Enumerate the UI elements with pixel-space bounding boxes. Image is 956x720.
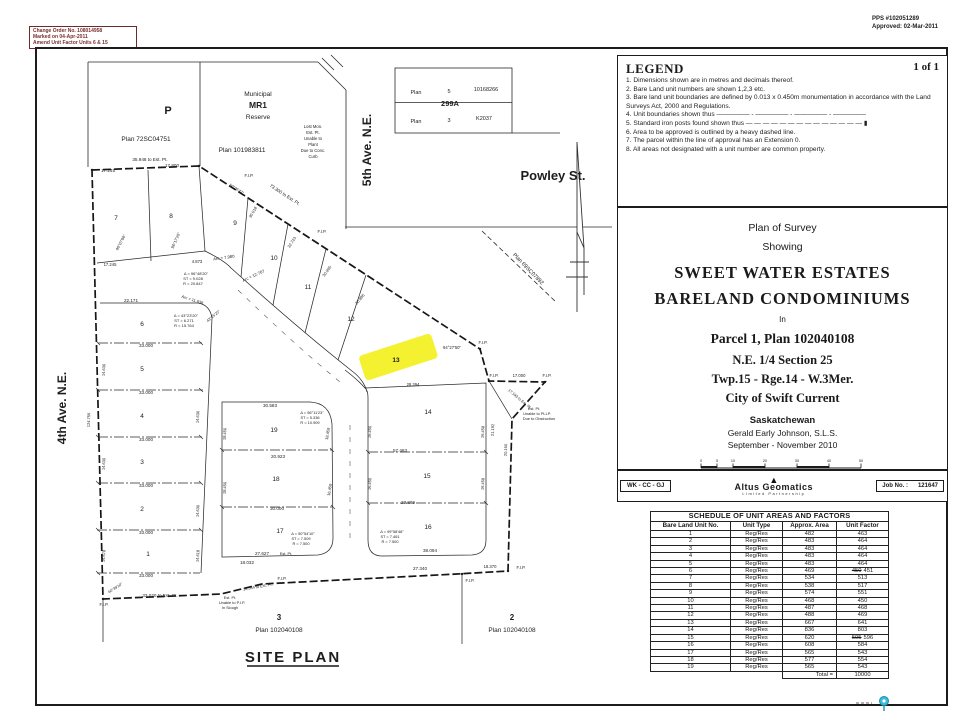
dimension-label: R = 15.764 <box>174 323 194 328</box>
dimension-label: 96°17'20" <box>170 231 182 249</box>
table-cell: 836 <box>783 627 837 634</box>
total-row: Total =10000 <box>651 671 889 678</box>
dimension-label: 17.800 <box>165 163 179 168</box>
lot-number: 5 <box>140 366 144 373</box>
dimension-label: Plant <box>308 142 318 147</box>
table-cell: 565 <box>783 664 837 671</box>
table-row: 17Reg/Res565543 <box>651 649 889 656</box>
parcel-plan-number: Plan 102040108 <box>488 627 536 634</box>
dimension-label: Arc = 12.767 <box>241 268 265 283</box>
dimension-label: Arc = 11.638 <box>181 294 205 306</box>
table-cell: 469 <box>783 568 837 575</box>
survey-plan-page: { "stamps": { "change_order": ["Change O… <box>0 0 956 720</box>
job-number-box: Job No. : 121647 <box>876 480 944 492</box>
dimension-label: 16.458 <box>480 425 486 438</box>
table-cell: 15 <box>651 634 731 641</box>
dimension-label: 3 <box>447 118 450 124</box>
column-header: Unit Factor <box>837 522 889 531</box>
parcel-label-p: P <box>164 105 171 117</box>
dimension-label: K2037 <box>476 116 492 122</box>
unit-factor-cell: 551 <box>837 590 889 597</box>
total-label: Total = <box>783 671 837 678</box>
lot-number: 3 <box>140 459 144 466</box>
table-cell: 483 <box>783 545 837 552</box>
legend-item: 8. All areas not designated with a unit … <box>626 146 939 155</box>
lot-number: 7 <box>114 215 118 222</box>
table-cell: 8 <box>651 582 731 589</box>
table-row: 5Reg/Res483464 <box>651 560 889 567</box>
table-cell: 1 <box>651 531 731 538</box>
table-cell: 487 <box>783 605 837 612</box>
dimension-label: In Slough <box>222 605 238 610</box>
scale-tick-label: 5 <box>715 459 717 463</box>
map-pin-icon[interactable] <box>856 697 889 712</box>
schedule-table: SCHEDULE OF UNIT AREAS AND FACTORS Bare … <box>650 511 889 679</box>
street-label-4th-ave: 4th Ave. N.E. <box>55 372 69 444</box>
dimension-label: 94°27'50" <box>443 345 461 350</box>
unit-factor-cell: 464 <box>837 553 889 560</box>
table-cell: Reg/Res <box>731 560 783 567</box>
dimension-label: 18.370 <box>484 564 497 569</box>
table-cell: 13 <box>651 619 731 626</box>
reserve-label: Reserve <box>246 114 271 121</box>
crew-initials: WK - CC - GJ <box>620 480 671 492</box>
dimension-label: 17.245 <box>104 262 117 267</box>
dimension-label: 14.630 <box>195 504 201 517</box>
reserve-label: Municipal <box>244 91 272 98</box>
dimension-label: 16.458 <box>480 477 486 490</box>
quarter-line: N.E. 1/4 Section 25 <box>618 353 947 368</box>
column-header: Bare Land Unit No. <box>651 522 731 531</box>
surveyor-name: Gerald Early Johnson, S.L.S. <box>618 428 947 438</box>
dimension-label: 73.300 to Est. Pt. <box>269 183 301 206</box>
schedule-title: SCHEDULE OF UNIT AREAS AND FACTORS <box>651 512 889 522</box>
total-value: 10000 <box>837 671 889 678</box>
reserve-label: MR1 <box>249 100 267 110</box>
table-cell: 577 <box>783 656 837 663</box>
lot-number: 10 <box>270 255 278 262</box>
dimension-label: 124.756 <box>86 412 92 427</box>
lot-number: 2 <box>140 506 144 513</box>
site-plan-title: SITE PLAN <box>245 649 341 666</box>
legend-item: 6. Area to be approved is outlined by a … <box>626 129 939 138</box>
dimension-label: F.I.P. <box>244 173 253 178</box>
table-cell: 468 <box>783 597 837 604</box>
table-cell: 534 <box>783 575 837 582</box>
title-block-footer: WK - CC - GJ ▲ Altus Geomatics Limited P… <box>617 470 948 502</box>
dimension-label: 18.450 <box>222 427 228 440</box>
unit-factor-cell: 595596 <box>837 634 889 641</box>
page-number: 1 of 1 <box>913 61 939 73</box>
legend-item: 4. Unit boundaries shown thus ————— - ——… <box>626 111 939 120</box>
parcel-plan-number: Plan 72SC04751 <box>121 136 171 143</box>
street-label-powley: Powley St. <box>520 168 585 183</box>
table-row: 16Reg/Res608584 <box>651 642 889 649</box>
table-cell: Reg/Res <box>731 612 783 619</box>
dimension-label: 60°39'10" <box>108 582 124 595</box>
table-cell: 482 <box>783 531 837 538</box>
dimension-label: 27.627 <box>255 551 269 556</box>
showing-label: Showing <box>618 241 947 253</box>
dimension-label: R = 20.847 <box>183 281 203 286</box>
scale-tick-label: 10 <box>730 459 734 463</box>
table-cell: Reg/Res <box>731 649 783 656</box>
dimension-label: 17.245 <box>101 168 115 173</box>
table-cell: Reg/Res <box>731 538 783 545</box>
table-cell: 488 <box>783 612 837 619</box>
lot-number: 15 <box>423 473 431 480</box>
dimension-label: F.I.P. <box>465 578 474 583</box>
unit-factor-cell: 803 <box>837 627 889 634</box>
table-cell: 574 <box>783 590 837 597</box>
legend-item: 1. Dimensions shown are in metres and de… <box>626 77 939 86</box>
dimension-label: 30.000 <box>270 506 284 511</box>
scale-tick-label: 20 <box>762 459 766 463</box>
province-label: Saskatchewan <box>618 415 947 426</box>
unit-factor-cell: 464 <box>837 538 889 545</box>
dimension-label: 14.630 <box>101 457 107 470</box>
table-row: 3Reg/Res483464 <box>651 545 889 552</box>
dimension-label: Due to Obstruction <box>523 416 555 421</box>
plan-299a-label: 299A <box>441 99 460 108</box>
legend-items: 1. Dimensions shown are in metres and de… <box>626 77 939 154</box>
city-line: City of Swift Current <box>618 391 947 406</box>
dimension-label: Est. Pt. <box>280 551 293 556</box>
column-header: Unit Type <box>731 522 783 531</box>
unit-factor-cell: 464 <box>837 545 889 552</box>
unit-factor-cell: 450451 <box>837 568 889 575</box>
table-row: 10Reg/Res468450 <box>651 597 889 604</box>
scale-tick-label: 50 <box>858 459 862 463</box>
table-cell: 7 <box>651 575 731 582</box>
lot-number: 4 <box>140 413 144 420</box>
dimension-label: Lost Mon. <box>304 124 322 129</box>
dimension-label: F.I.P. <box>317 229 326 234</box>
dimension-label: 33.000 <box>139 390 153 395</box>
lot-number: 6 <box>140 321 144 328</box>
dimension-label: 27.889 <box>401 500 415 505</box>
table-cell: 18 <box>651 656 731 663</box>
dimension-label: 43°25'20" <box>206 309 222 323</box>
dimension-label: 35.948 to Est. Pt. <box>132 157 167 162</box>
table-row: 1Reg/Res482463 <box>651 531 889 538</box>
estate-name: SWEET WATER ESTATES <box>618 263 947 283</box>
dimension-label: Est. Pt. <box>306 130 320 135</box>
dimension-label: 14.618 <box>195 549 201 562</box>
table-row: 9Reg/Res574551 <box>651 590 889 597</box>
table-cell: 16 <box>651 642 731 649</box>
dimension-label: Plan <box>410 119 421 125</box>
dimension-label: 33.020 to Est. Pt. <box>142 593 177 598</box>
table-cell: 11 <box>651 605 731 612</box>
table-cell: 6 <box>651 568 731 575</box>
table-cell: Reg/Res <box>731 605 783 612</box>
survey-dates: September - November 2010 <box>618 440 947 450</box>
dimension-label: 18.459 <box>324 427 331 441</box>
unit-factor-cell: 513 <box>837 575 889 582</box>
unit-factor-cell: 584 <box>837 642 889 649</box>
unit-factor-cell: 517 <box>837 582 889 589</box>
dimension-label: F.I.P. <box>478 340 487 345</box>
table-cell: 565 <box>783 649 837 656</box>
table-cell: Reg/Res <box>731 568 783 575</box>
table-cell: 667 <box>783 619 837 626</box>
condo-name: BARELAND CONDOMINIUMS <box>618 289 947 309</box>
triangle-side <box>489 381 512 419</box>
dimension-label: 14.678 <box>101 549 107 562</box>
table-cell: Reg/Res <box>731 642 783 649</box>
lot-number: 11 <box>305 284 312 291</box>
dimension-label: 30.995 <box>321 264 333 277</box>
firm-logo: ▲ Altus Geomatics Limited Partnership <box>671 477 876 496</box>
table-cell: 2 <box>651 538 731 545</box>
dimension-label: 50°06'47" <box>229 183 245 196</box>
dimension-label: 33.000 <box>139 573 153 578</box>
dimension-label: F.I.P. <box>277 576 286 581</box>
table-cell: 5 <box>651 560 731 567</box>
table-cell: 538 <box>783 582 837 589</box>
table-cell: 14 <box>651 627 731 634</box>
empty-cell <box>651 671 783 678</box>
legend-item: 7. The parcel within the line of approva… <box>626 137 939 146</box>
dimension-label: 22.171 <box>124 298 138 303</box>
parcel-plan-number: Plan 101983811 <box>219 147 266 154</box>
table-cell: Reg/Res <box>731 553 783 560</box>
township-line: Twp.15 - Rge.14 - W.3Mer. <box>618 372 947 387</box>
dimension-label: R = 10.909 <box>300 420 319 425</box>
dimension-label: 33.000 <box>139 483 153 488</box>
lot-number: 14 <box>424 409 432 416</box>
table-cell: Reg/Res <box>731 656 783 663</box>
job-label: Job No. : <box>882 483 908 489</box>
table-cell: Reg/Res <box>731 590 783 597</box>
dimension-label: 20.923 <box>271 454 285 459</box>
table-cell: 4 <box>651 553 731 560</box>
unit-factor-cell: 450 <box>837 597 889 604</box>
unit-factor-cell: 641 <box>837 619 889 626</box>
table-cell: Reg/Res <box>731 575 783 582</box>
dimension-label: 33.000 <box>139 530 153 535</box>
table-cell: Reg/Res <box>731 545 783 552</box>
dimension-label: Arc = 7.980 <box>213 253 236 261</box>
dimension-label: 30.583 <box>263 403 277 408</box>
lot-number: 19 <box>270 427 278 434</box>
dimension-label: 30.018 <box>247 205 258 219</box>
dimension-label: 33.000 <box>139 343 153 348</box>
dimension-label: 57.463 <box>393 448 407 453</box>
dimension-label: 14.630 <box>195 410 201 423</box>
dimension-label: Curb <box>308 154 318 159</box>
table-row: 18Reg/Res577554 <box>651 656 889 663</box>
dimension-label: Due to Conc. <box>301 148 325 153</box>
dimension-label: Plan <box>410 90 421 96</box>
lot-number: 18 <box>272 476 280 483</box>
dimension-label: F.I.P. <box>542 373 551 378</box>
dimension-label: 5 <box>447 89 450 95</box>
dimension-label: 20.160 <box>503 443 508 456</box>
table-row: 13Reg/Res667641 <box>651 619 889 626</box>
table-cell: Reg/Res <box>731 597 783 604</box>
title-block: Plan of Survey Showing SWEET WATER ESTAT… <box>617 207 948 470</box>
dimension-label: 32.723 <box>286 235 297 249</box>
dimension-label: F.I.P. <box>489 373 498 378</box>
scale-tick-label: 30 <box>794 459 798 463</box>
lot-number: 1 <box>146 551 150 558</box>
plan-69sc07892-line <box>482 231 557 303</box>
lot-number: 17 <box>276 528 284 535</box>
table-row: 14Reg/Res836803 <box>651 627 889 634</box>
legend-panel: LEGEND 1 of 1 1. Dimensions shown are in… <box>617 55 948 207</box>
dimension-label: 4.873 <box>192 259 203 264</box>
dimension-label: 16.450 <box>367 425 373 438</box>
in-label: In <box>618 315 947 324</box>
table-row: 11Reg/Res487468 <box>651 605 889 612</box>
table-row: 8Reg/Res538517 <box>651 582 889 589</box>
table-row: 7Reg/Res534513 <box>651 575 889 582</box>
table-row: 12Reg/Res488469 <box>651 612 889 619</box>
table-cell: 17 <box>651 649 731 656</box>
table-cell: 483 <box>783 538 837 545</box>
dimension-label: Unable to <box>304 136 323 141</box>
schedule-header-row: Bare Land Unit No.Unit TypeApprox. AreaU… <box>651 522 889 531</box>
dimension-label: 17.193 to Est. Pt. <box>507 388 532 410</box>
table-cell: 620 <box>783 634 837 641</box>
table-cell: 19 <box>651 664 731 671</box>
unit-factor-cell: 543 <box>837 649 889 656</box>
table-cell: 3 <box>651 545 731 552</box>
dimension-label: 30.985 <box>354 292 366 305</box>
scale-tick-label: 40 <box>826 459 830 463</box>
dimension-label: 27.340 <box>413 566 427 571</box>
table-cell: Reg/Res <box>731 664 783 671</box>
lot-number: 8 <box>169 213 173 220</box>
plan-type: Plan of Survey <box>618 222 947 234</box>
table-cell: Reg/Res <box>731 619 783 626</box>
table-row: 2Reg/Res483464 <box>651 538 889 545</box>
table-cell: 608 <box>783 642 837 649</box>
dimension-label: 18.450 <box>222 481 228 494</box>
dimension-label: 14.630 <box>101 363 107 376</box>
dimension-label: F.I.P. <box>516 565 525 570</box>
dimension-label: 16.459 <box>326 483 333 497</box>
legend-item: 5. Standard iron posts found shown thus … <box>626 120 939 129</box>
unit-factor-cell: 469 <box>837 612 889 619</box>
unit-factor-cell: 554 <box>837 656 889 663</box>
column-header: Approx. Area <box>783 522 837 531</box>
table-row: 6Reg/Res469450451 <box>651 568 889 575</box>
lot-number: 12 <box>347 316 355 323</box>
schedule-section: SCHEDULE OF UNIT AREAS AND FACTORS Bare … <box>650 511 888 679</box>
table-cell: Reg/Res <box>731 582 783 589</box>
unit-factor-cell: 468 <box>837 605 889 612</box>
legend-item: 3. Bare land unit boundaries are defined… <box>626 94 939 111</box>
parcel-plan-number: Plan 69SC07892 <box>511 252 544 286</box>
unit-factor-cell: 543 <box>837 664 889 671</box>
table-cell: Reg/Res <box>731 634 783 641</box>
table-cell: 10 <box>651 597 731 604</box>
job-value: 121647 <box>918 483 938 489</box>
dimension-label: 10168266 <box>474 87 498 93</box>
dimension-label: 90°07'00" <box>114 233 127 251</box>
south-parcel-3: 3 <box>277 613 282 622</box>
dimension-label: 16.554 to Est. Pt. <box>243 581 273 591</box>
table-cell: 483 <box>783 553 837 560</box>
table-cell: 12 <box>651 612 731 619</box>
lot-number: 16 <box>424 524 432 531</box>
parcel-line: Parcel 1, Plan 102040108 <box>618 331 947 347</box>
scale-tick-label: 0 <box>699 459 701 463</box>
table-row: 19Reg/Res565543 <box>651 664 889 671</box>
table-cell: 483 <box>783 560 837 567</box>
table-cell: Reg/Res <box>731 531 783 538</box>
unit-factor-cell: 464 <box>837 560 889 567</box>
lot-number: 9 <box>233 220 237 227</box>
dimension-label: 28.394 <box>407 382 420 387</box>
dimension-label: 21.192 <box>490 423 495 436</box>
dimension-label: 17.000 <box>513 373 526 378</box>
legend-item: 2. Bare Land unit numbers are shown 1,2,… <box>626 86 939 95</box>
lot-number: 13 <box>392 357 400 364</box>
dimension-label: 18.032 <box>240 560 254 565</box>
dimension-label: 33.000 <box>139 437 153 442</box>
dimension-label: R = 7.500 <box>382 539 400 544</box>
table-cell: Reg/Res <box>731 627 783 634</box>
table-row: 15Reg/Res620595596 <box>651 634 889 641</box>
dimension-label: 38.094 <box>423 548 437 553</box>
unit-factor-cell: 463 <box>837 531 889 538</box>
parcel-plan-number: Plan 102040108 <box>255 627 303 634</box>
table-row: 4Reg/Res483464 <box>651 553 889 560</box>
legend-title: LEGEND <box>626 61 684 77</box>
south-parcel-2: 2 <box>510 613 515 622</box>
firm-subtitle: Limited Partnership <box>671 492 876 496</box>
table-cell: 9 <box>651 590 731 597</box>
dimension-label: F.I.P. <box>99 602 108 607</box>
dimension-label: R = 7.500 <box>293 541 311 546</box>
dimension-label: 16.450 <box>367 477 373 490</box>
street-label-5th-ave: 5th Ave. N.E. <box>360 114 374 186</box>
